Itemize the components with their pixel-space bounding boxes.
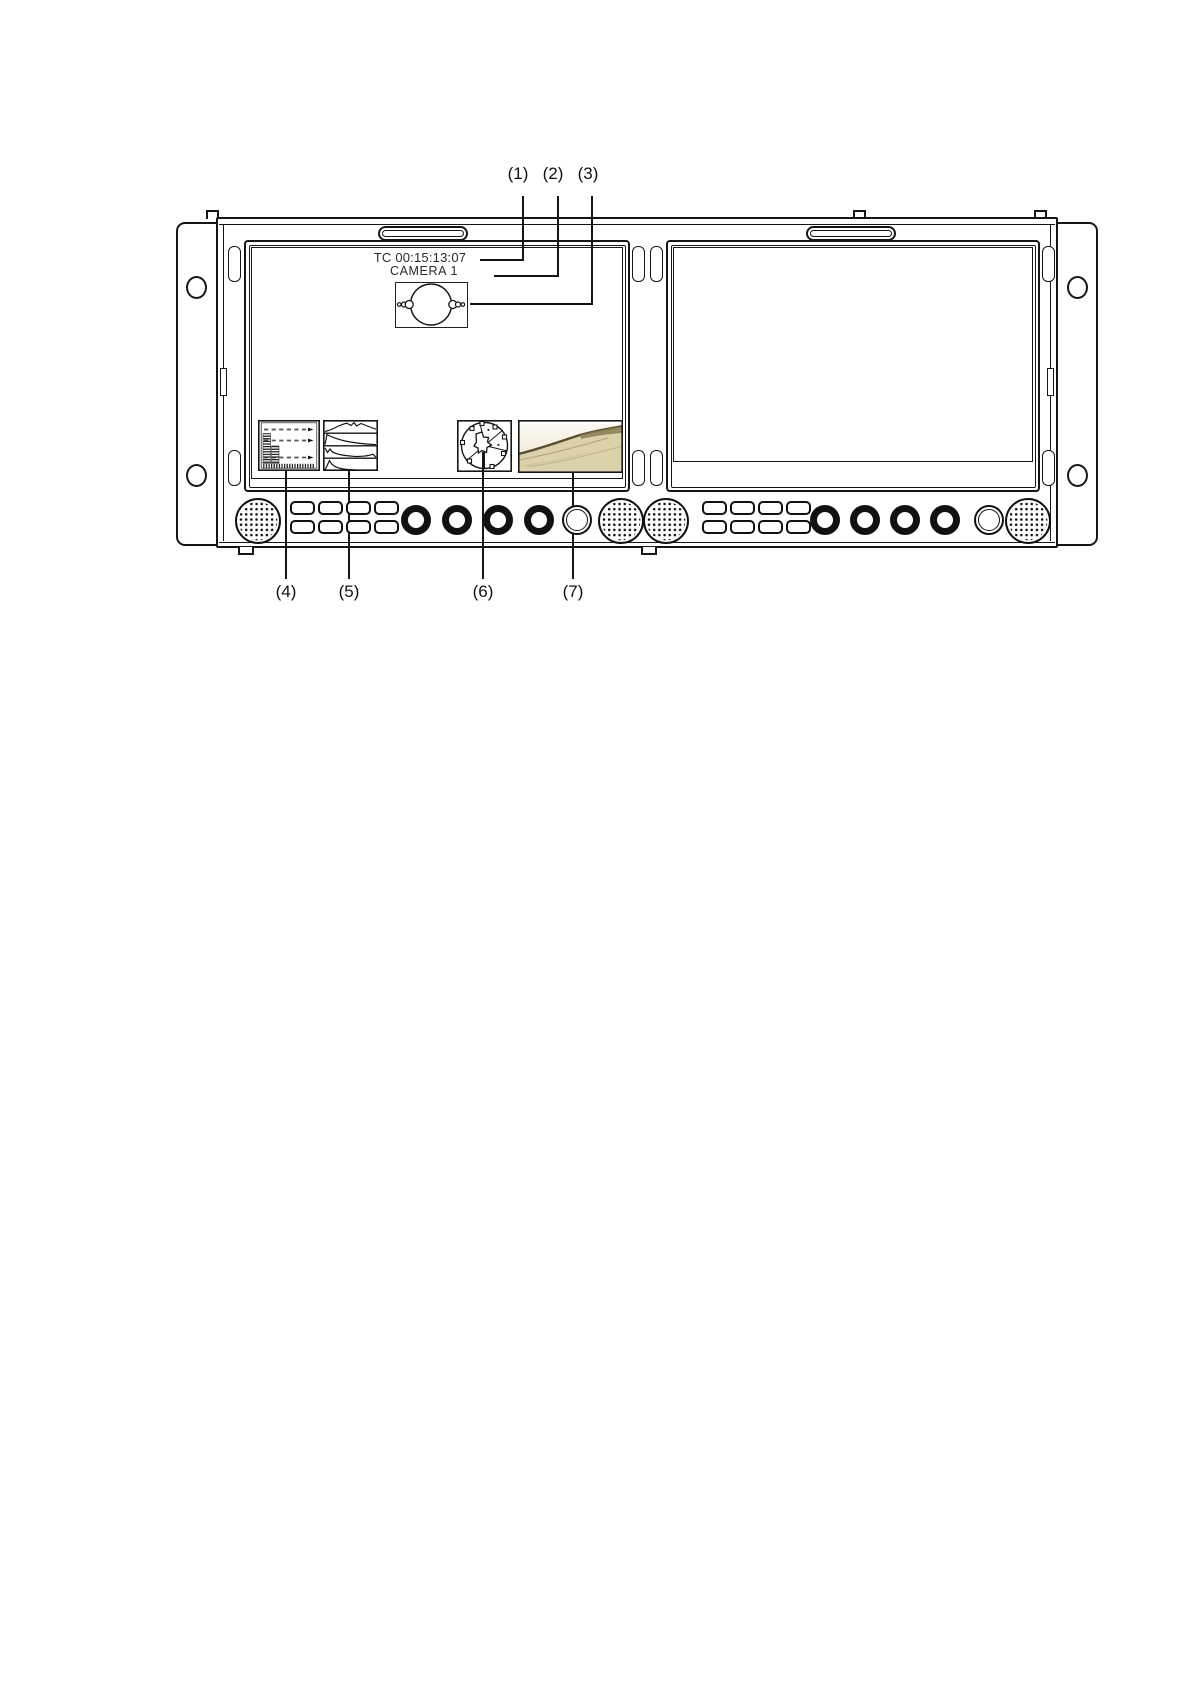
callout-label-5: (5) <box>332 582 366 602</box>
rotary-encoder-knob <box>974 505 1004 535</box>
function-button <box>730 520 755 534</box>
callout-label-3: (3) <box>571 164 605 184</box>
function-button <box>786 520 811 534</box>
rotary-encoder-knob <box>562 505 592 535</box>
speaker-grille <box>235 498 281 544</box>
function-button <box>346 520 371 534</box>
function-button <box>786 501 811 515</box>
control-knob <box>890 505 920 535</box>
function-button <box>374 520 399 534</box>
control-knob <box>930 505 960 535</box>
function-button <box>758 501 783 515</box>
control-knob <box>483 505 513 535</box>
function-button <box>290 520 315 534</box>
function-button <box>318 520 343 534</box>
function-button <box>702 520 727 534</box>
control-knob <box>524 505 554 535</box>
callout-label-7: (7) <box>556 582 590 602</box>
callout-line-2 <box>494 196 558 276</box>
callout-lines <box>0 0 1192 1685</box>
callout-line-3 <box>470 196 592 304</box>
function-button <box>346 501 371 515</box>
callout-line-1 <box>480 196 523 260</box>
function-button <box>290 501 315 515</box>
control-knob <box>442 505 472 535</box>
dual-rack-monitor-figure: TC 00:15:13:07 CAMERA 1 <box>0 0 1192 1685</box>
speaker-grille <box>1005 498 1051 544</box>
control-knob <box>810 505 840 535</box>
function-button <box>758 520 783 534</box>
function-button <box>374 501 399 515</box>
callout-label-2: (2) <box>536 164 570 184</box>
callout-label-6: (6) <box>466 582 500 602</box>
speaker-grille <box>598 498 644 544</box>
control-knob <box>850 505 880 535</box>
speaker-grille <box>643 498 689 544</box>
callout-label-4: (4) <box>269 582 303 602</box>
function-button <box>730 501 755 515</box>
function-button <box>702 501 727 515</box>
callout-label-1: (1) <box>501 164 535 184</box>
control-knob <box>401 505 431 535</box>
function-button <box>318 501 343 515</box>
